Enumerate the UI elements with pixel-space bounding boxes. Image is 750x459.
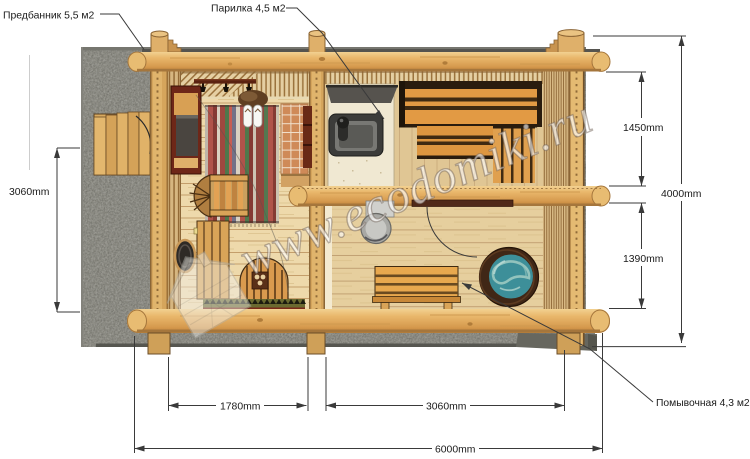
- svg-text:Помывочная 4,3 м2: Помывочная 4,3 м2: [656, 398, 750, 409]
- svg-text:6000mm: 6000mm: [435, 445, 475, 456]
- svg-text:1390mm: 1390mm: [623, 254, 663, 265]
- svg-text:1450mm: 1450mm: [623, 123, 663, 134]
- svg-text:3060mm: 3060mm: [426, 402, 466, 413]
- svg-text:1780mm: 1780mm: [220, 402, 260, 413]
- svg-text:4000mm: 4000mm: [661, 189, 701, 200]
- svg-text:3060mm: 3060mm: [9, 187, 49, 198]
- svg-text:Предбанник 5,5 м2: Предбанник 5,5 м2: [3, 10, 95, 22]
- svg-text:Парилка 4,5 м2: Парилка 4,5 м2: [211, 4, 286, 15]
